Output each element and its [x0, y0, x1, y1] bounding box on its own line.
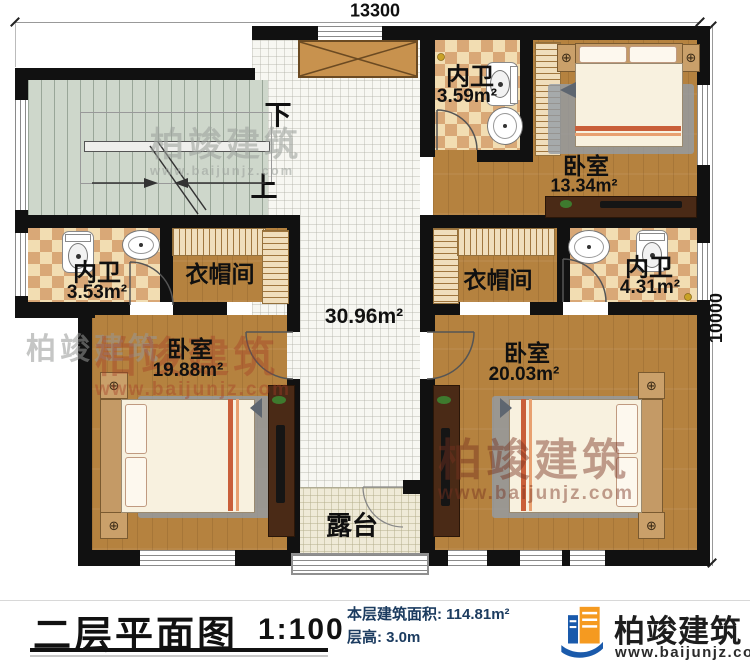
- window: [140, 550, 235, 566]
- extension-line: [15, 23, 16, 67]
- floor-plan-page: 13300 10000 下 上: [0, 0, 750, 670]
- tv-icon: [441, 428, 450, 506]
- sink-basin: [574, 236, 604, 258]
- bed-headboard: [640, 399, 663, 513]
- bed-stripe: [228, 399, 233, 511]
- room-area-bath-right: 4.31m²: [620, 277, 680, 299]
- closet-hanger-rack: [172, 228, 266, 256]
- bed-stripe: [529, 399, 532, 511]
- flower-icon: ⊕: [646, 378, 657, 394]
- sink-basin: [128, 236, 154, 254]
- wall-segment: [78, 310, 92, 566]
- room-area-hall: 30.96m²: [325, 305, 403, 329]
- closet-hanger-rack: [457, 228, 555, 256]
- room-area-bath-top: 3.59m²: [437, 86, 497, 108]
- window: [520, 550, 562, 566]
- window: [15, 100, 28, 210]
- wall-segment: [530, 302, 563, 315]
- room-area-bedroom-bottom-right: 20.03m²: [489, 364, 560, 386]
- terrace-railing: [291, 553, 429, 575]
- scale-label: 1:100: [258, 613, 345, 647]
- room-area-bedroom-bottom-left: 19.88m²: [153, 360, 224, 382]
- nightstand: ⊕: [682, 44, 700, 72]
- flower-icon: ⊕: [646, 518, 657, 534]
- room-label-terrace: 露台: [326, 506, 378, 543]
- wall-segment: [420, 38, 435, 157]
- closet-hanger-rack: [262, 230, 289, 304]
- flower-icon: ⊕: [686, 50, 697, 66]
- room-area-bath-left: 3.53m²: [67, 282, 127, 304]
- title-underline: [30, 648, 328, 652]
- stair-rail: [84, 141, 270, 152]
- floor-area-label: 本层建筑面积: 114.81m²: [347, 603, 510, 624]
- wall-segment: [697, 165, 710, 243]
- plant-icon: [560, 200, 572, 208]
- wall-segment: [520, 38, 533, 162]
- pillow: [629, 46, 677, 63]
- wall-segment: [15, 68, 28, 100]
- wardrobe-box: [298, 40, 418, 78]
- plant-icon: [437, 396, 451, 404]
- floor-height-label: 层高: 3.0m: [347, 626, 420, 647]
- sink-icon: [122, 230, 160, 260]
- flower-icon: ⊕: [109, 518, 120, 534]
- dimension-line-top: [15, 22, 701, 23]
- nightstand: ⊕: [638, 372, 665, 399]
- pillow: [125, 404, 147, 454]
- wall-segment: [15, 215, 300, 228]
- wall-segment: [487, 550, 520, 566]
- brand-logo-icon: [558, 602, 608, 660]
- room-label-closet-left: 衣帽间: [186, 255, 255, 289]
- nightstand: ⊕: [100, 372, 128, 399]
- wall-segment: [15, 68, 255, 80]
- window: [697, 85, 710, 165]
- toilet-tank: [639, 233, 665, 241]
- window: [15, 233, 28, 296]
- pillow: [616, 404, 638, 454]
- window: [697, 243, 710, 300]
- pillow: [616, 457, 638, 507]
- wall-segment: [562, 550, 570, 566]
- plant-icon: [272, 396, 286, 404]
- window: [448, 550, 487, 566]
- wall-segment: [608, 302, 710, 315]
- wall-segment: [173, 302, 227, 315]
- tv-icon: [276, 425, 285, 503]
- room-area-bedroom-top-right: 13.34m²: [550, 176, 617, 197]
- bed-stripe: [575, 126, 681, 131]
- nightstand: ⊕: [557, 44, 576, 72]
- nightstand: ⊕: [100, 512, 128, 539]
- pillow: [125, 457, 147, 507]
- bed-stripe: [236, 399, 239, 511]
- closet-hanger-rack: [433, 228, 459, 304]
- room-label-bedroom-bottom-left: 卧室: [167, 330, 213, 364]
- nightstand: ⊕: [638, 512, 665, 539]
- bed-stripe: [575, 133, 681, 136]
- wall-segment: [403, 480, 430, 494]
- dimension-top: 13300: [350, 1, 400, 22]
- flower-icon: ⊕: [109, 378, 120, 394]
- wall-segment: [78, 550, 140, 566]
- window: [318, 26, 382, 40]
- wall-segment: [252, 26, 318, 40]
- stair-up-label: 上: [251, 166, 278, 205]
- brand-website: www.baijunjz.com: [615, 644, 750, 661]
- window: [570, 550, 605, 566]
- room-label-bedroom-bottom-right: 卧室: [504, 334, 550, 368]
- pillow: [579, 46, 627, 63]
- toilet-tank: [510, 66, 518, 104]
- wall-segment: [697, 300, 710, 566]
- sink-icon: [568, 230, 610, 264]
- wall-segment: [557, 228, 570, 302]
- title-underline-shadow: [30, 655, 328, 657]
- flower-icon: ⊕: [561, 50, 572, 66]
- bed-headboard: [100, 399, 123, 513]
- toilet-tank: [65, 234, 91, 242]
- tv-icon: [600, 201, 682, 208]
- sink-basin: [493, 113, 517, 139]
- bed-stripe: [521, 399, 526, 511]
- room-label-closet-right: 衣帽间: [464, 261, 533, 295]
- sink-icon: [487, 107, 523, 145]
- footer-divider: [0, 600, 750, 601]
- wall-segment: [605, 550, 710, 566]
- stair-down-label: 下: [265, 94, 292, 133]
